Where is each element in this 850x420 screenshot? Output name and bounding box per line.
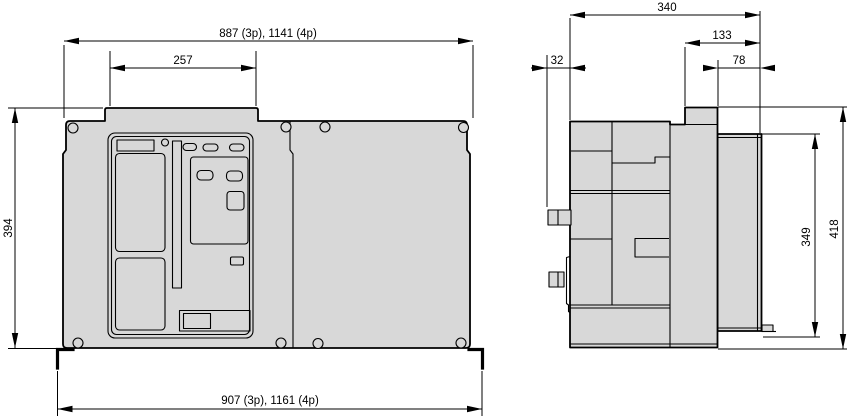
dimension-front-top-section: 257 [110,51,256,106]
dim-label-side-rear-depth: 133 [712,30,731,42]
dim-label-front-height: 394 [3,218,15,238]
drawing-canvas: 887 (3p), 1141 (4p) 257 394 907 [0,0,850,420]
dimension-front-width-bottom: 907 (3p), 1161 (4p) [58,371,483,416]
dim-label-side-frame-depth: 78 [733,55,746,67]
dim-label-side-frame-height: 349 [801,227,813,246]
mounting-hole [73,338,83,348]
dim-label-side-height: 418 [829,219,841,238]
mounting-hole [459,123,469,133]
dim-label-side-depth: 340 [657,2,676,14]
base-flange-left [58,350,74,369]
mounting-clip [762,325,773,332]
side-view [548,108,776,348]
mounting-hole [281,122,291,132]
mounting-hole [68,123,78,133]
side-body-outline [570,108,718,348]
front-body-outline [63,108,470,348]
dim-label-side-front-protrusion: 32 [551,55,564,67]
mounting-hole [456,338,466,348]
dim-label-front-top-section: 257 [173,55,192,67]
mounting-hole [276,338,286,348]
dim-label-front-width-bottom: 907 (3p), 1161 (4p) [221,395,319,407]
technical-drawing: 887 (3p), 1141 (4p) 257 394 907 [0,0,850,420]
front-view [58,108,483,368]
mounting-hole [313,339,323,349]
side-rear-frame [718,134,762,331]
dim-label-front-width-top: 887 (3p), 1141 (4p) [219,28,317,40]
dimension-front-width-top: 887 (3p), 1141 (4p) [64,28,473,118]
dimension-side-frame-depth: 78 [703,55,775,106]
mounting-hole [320,122,330,132]
terminal-tab-lower [549,272,564,287]
terminal-tab-upper [548,210,571,225]
base-flange-right [469,350,483,369]
